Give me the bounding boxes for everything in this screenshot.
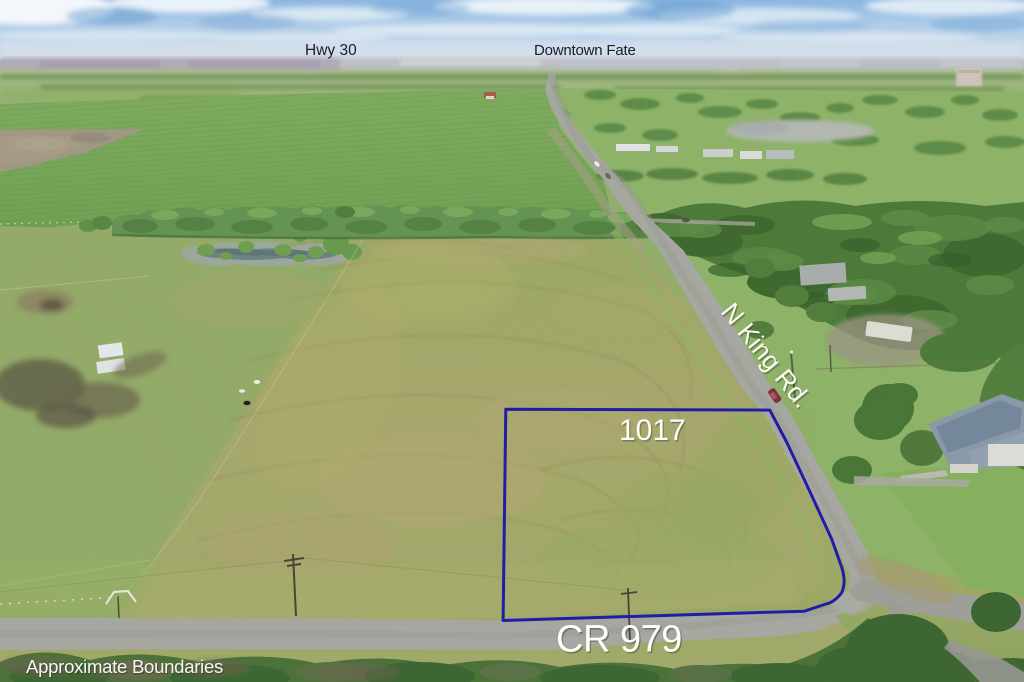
svg-text:Downtown Fate: Downtown Fate — [534, 42, 636, 59]
svg-text:Hwy 30: Hwy 30 — [305, 42, 357, 59]
svg-text:1017: 1017 — [619, 414, 686, 447]
svg-text:Approximate Boundaries: Approximate Boundaries — [26, 656, 223, 677]
svg-text:CR 979: CR 979 — [556, 619, 682, 661]
